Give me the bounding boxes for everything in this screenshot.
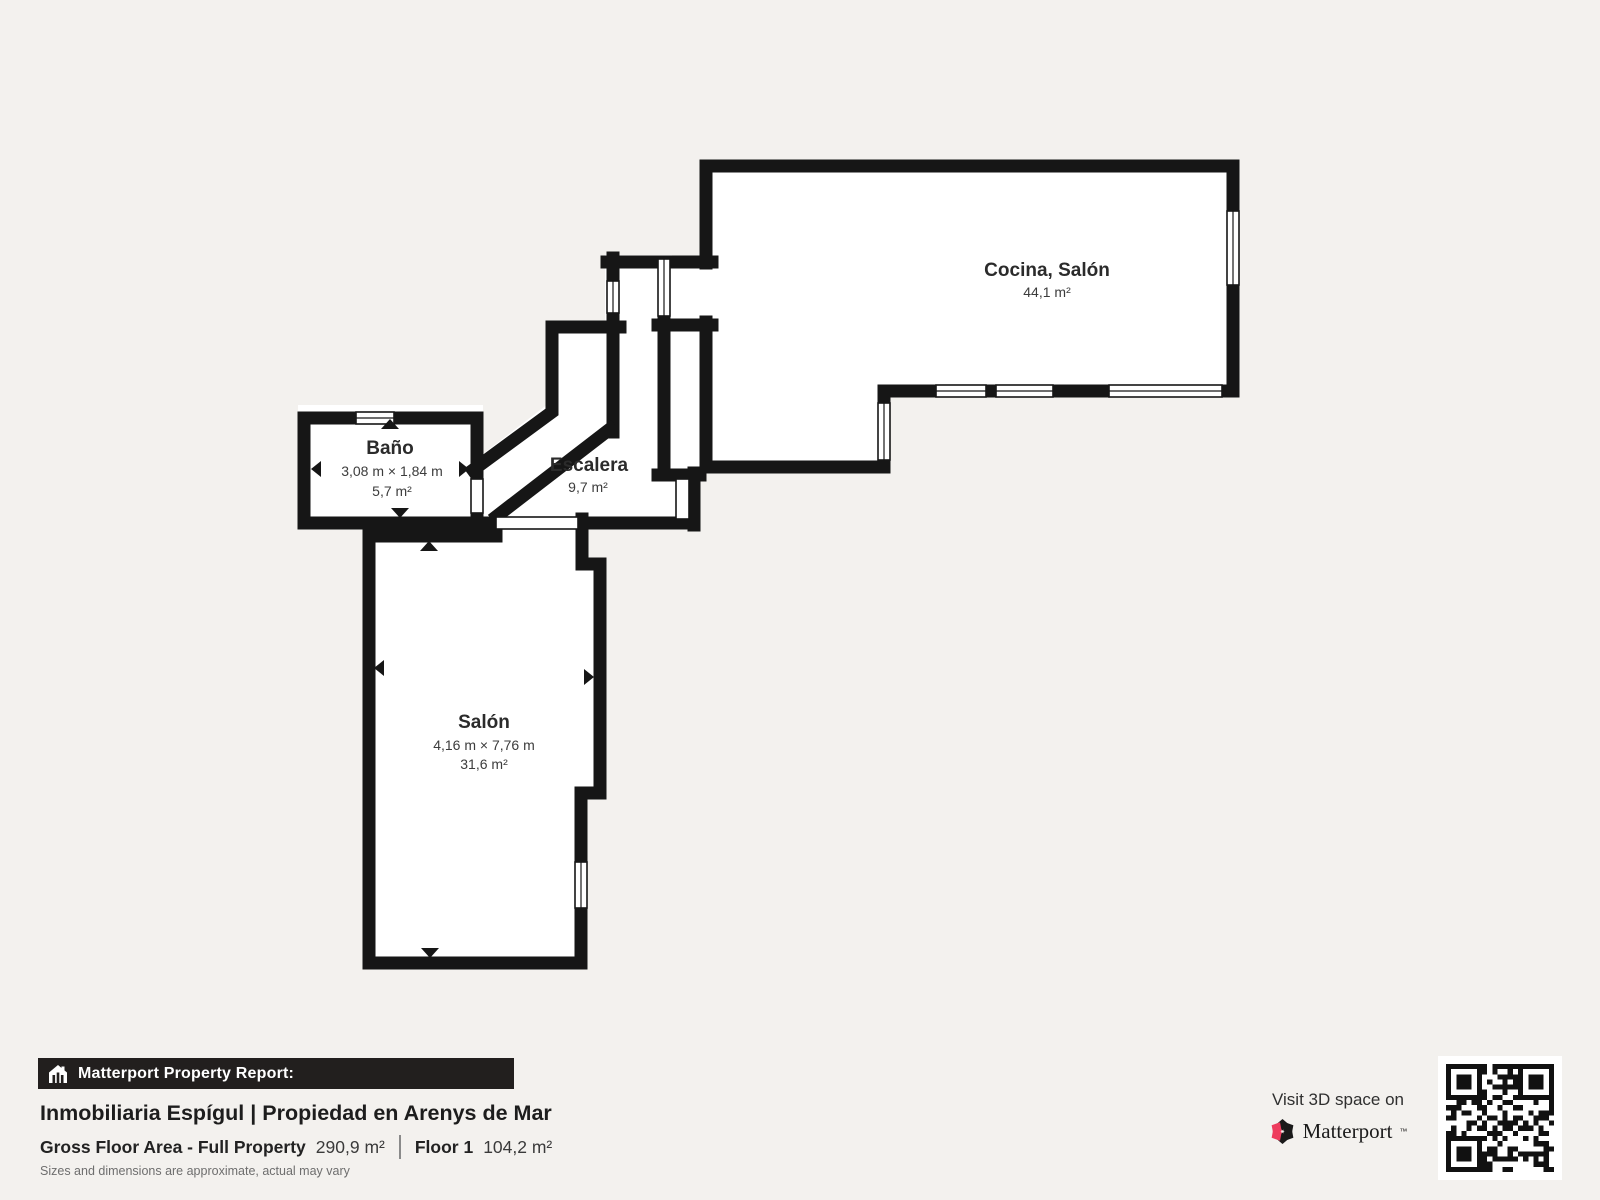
matterport-brand-row: Matterport ™ xyxy=(1248,1118,1428,1145)
window-extension-right xyxy=(878,403,890,460)
window-cocina-bottom-2 xyxy=(996,385,1053,397)
room-cocina-name: Cocina, Salón xyxy=(984,260,1110,281)
gross-floor-area-value: 290,9 m² xyxy=(316,1137,385,1158)
floor-plan: Cocina, Salón 44,1 m² Baño 3,08 m × 1,84… xyxy=(0,0,1600,1200)
visit-3d-space-link[interactable]: Visit 3D space on Matterport ™ xyxy=(1248,1090,1428,1145)
room-escalera-area: 9,7 m² xyxy=(568,479,608,495)
room-cocina-fill xyxy=(700,160,1239,470)
door-escalera-exterior xyxy=(676,479,689,519)
window-neck-left xyxy=(607,281,619,313)
floor-value: 104,2 m² xyxy=(483,1137,552,1158)
report-disclaimer: Sizes and dimensions are approximate, ac… xyxy=(40,1164,350,1178)
report-banner-label: Matterport Property Report: xyxy=(78,1065,294,1083)
matterport-wordmark: Matterport xyxy=(1303,1119,1393,1144)
room-cocina-area: 44,1 m² xyxy=(1023,284,1071,300)
window-salon-right xyxy=(575,862,587,908)
room-bano-area: 5,7 m² xyxy=(372,483,412,499)
room-salon-name: Salón xyxy=(458,712,510,733)
trademark-symbol: ™ xyxy=(1399,1127,1407,1136)
floor-label: Floor 1 xyxy=(415,1137,473,1158)
room-salon-dimensions: 4,16 m × 7,76 m xyxy=(433,737,535,753)
stats-divider xyxy=(399,1135,401,1159)
matterport-pinwheel-icon xyxy=(1269,1118,1296,1145)
visit-3d-space-label: Visit 3D space on xyxy=(1248,1090,1428,1110)
room-salon-area: 31,6 m² xyxy=(460,756,508,772)
room-fills xyxy=(298,160,1239,969)
house-report-icon xyxy=(48,1064,68,1084)
room-bano-name: Baño xyxy=(366,438,414,459)
window-cocina-bottom-1 xyxy=(936,385,986,397)
room-bano-dimensions: 3,08 m × 1,84 m xyxy=(341,463,443,479)
door-bano-escalera xyxy=(471,479,483,513)
report-banner: Matterport Property Report: xyxy=(38,1058,514,1089)
qr-code[interactable] xyxy=(1438,1056,1562,1180)
report-title: Inmobiliaria Espígul | Propiedad en Aren… xyxy=(40,1101,552,1126)
window-cocina-bottom-3 xyxy=(1109,385,1222,397)
gross-floor-area-label: Gross Floor Area - Full Property xyxy=(40,1137,306,1158)
door-escalera-salon xyxy=(496,517,578,529)
room-escalera-name: Escalera xyxy=(550,455,629,476)
window-neck-right xyxy=(658,259,670,316)
window-cocina-right xyxy=(1227,211,1239,285)
report-stats: Gross Floor Area - Full Property 290,9 m… xyxy=(40,1135,552,1159)
floor-plan-report-page: Cocina, Salón 44,1 m² Baño 3,08 m × 1,84… xyxy=(0,0,1600,1200)
qr-code-pattern xyxy=(1446,1064,1554,1172)
